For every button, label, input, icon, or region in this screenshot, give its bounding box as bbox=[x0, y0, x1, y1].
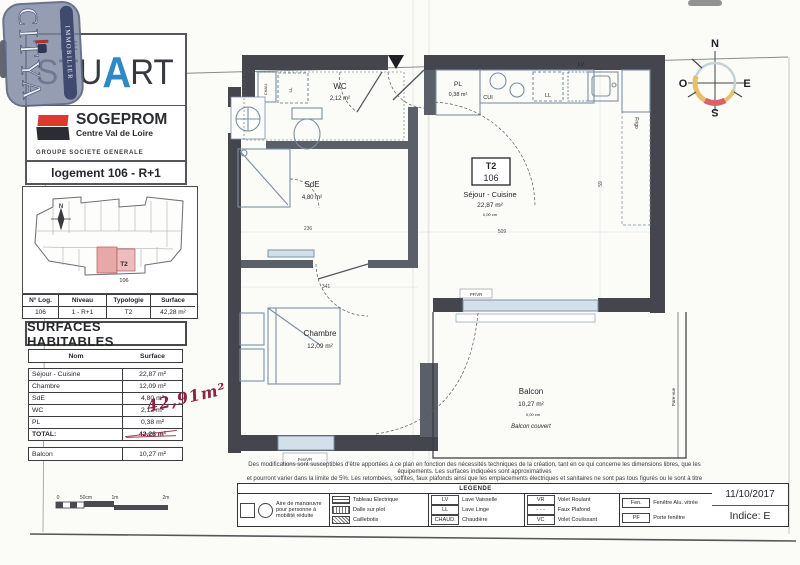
sink-basin bbox=[592, 76, 610, 96]
legend-pmr-column: Aire de manœuvre pour personne à mobilit… bbox=[238, 494, 330, 526]
wc-washer-label: LL bbox=[288, 87, 293, 93]
site-plan-drawing: N T2 106 bbox=[23, 187, 194, 290]
legend-abbr: CHAUD. bbox=[431, 515, 459, 525]
legend-label: Volet Roulant bbox=[558, 497, 591, 503]
unit-type-label: T2 bbox=[486, 161, 497, 171]
balcony-row: Balcon 10,27 m² bbox=[28, 447, 183, 461]
nightstand bbox=[240, 349, 264, 381]
kitchen-counter bbox=[480, 70, 594, 103]
sde-area-label: 4,80 m² bbox=[302, 195, 322, 201]
wc-door-leaf bbox=[357, 72, 382, 112]
dishwasher-box bbox=[568, 72, 594, 101]
compass-east-arc bbox=[725, 90, 734, 101]
bedroom-door-leaf bbox=[318, 264, 368, 279]
legend-label: Porte fenêtre bbox=[653, 515, 685, 521]
sejour-label: Séjour - Cuisine bbox=[463, 190, 516, 199]
pare-vue-label: Pare-vue bbox=[671, 387, 676, 406]
unit-level-cell: 1 - R+1 bbox=[59, 307, 107, 318]
unit-table-header: Typologie bbox=[107, 295, 151, 307]
compass-o: O bbox=[679, 78, 688, 90]
pl-label: PL bbox=[454, 81, 462, 88]
balcon-height-label: 0,00 cm bbox=[526, 412, 541, 417]
balcony-bay-window bbox=[463, 300, 598, 311]
plan-construction-lines bbox=[241, 55, 650, 435]
chambre-area-label: 12,09 m² bbox=[307, 343, 333, 350]
surfaces-header-row: Nom Surface bbox=[28, 349, 183, 363]
legend-label: Chaudière bbox=[462, 517, 487, 523]
nightstand bbox=[240, 313, 264, 345]
scale-bar-labels: 0 50cm 1m 2m bbox=[57, 495, 170, 501]
svg-text:0: 0 bbox=[57, 495, 60, 501]
developer-name: SOGEPROM bbox=[76, 111, 167, 129]
surfaces-header-name: Nom bbox=[29, 350, 123, 362]
legend-abbr: VC bbox=[527, 515, 555, 525]
legend-label: Tableau Electrique bbox=[353, 497, 398, 503]
legend-label: Fenêtre Alu. vitrée bbox=[653, 500, 698, 506]
dimension-label: 236 bbox=[304, 226, 313, 232]
dalle-sur-plot-icon bbox=[332, 506, 350, 514]
wc-washer-box bbox=[278, 73, 308, 103]
scale-bar-segments bbox=[56, 501, 168, 510]
unit-table-header: N° Log. bbox=[23, 295, 59, 307]
legend-symbols-column: Tableau Electrique Dalle sur plot Caille… bbox=[330, 494, 429, 526]
svg-text:1m: 1m bbox=[112, 495, 119, 501]
unit-surface-cell: 42,28 m² bbox=[151, 307, 195, 318]
caillebotis-icon bbox=[332, 516, 350, 524]
room-name: SdE bbox=[29, 393, 123, 405]
entrance-arrow-icon bbox=[388, 55, 404, 69]
balcony-area: 10,27 m² bbox=[123, 448, 182, 460]
fridge-label: Frigo bbox=[633, 117, 639, 129]
legend-appliance-column: LVLave Vaisselle LLLave Linge CHAUD.Chau… bbox=[429, 494, 525, 526]
wc-label: WC bbox=[333, 82, 347, 91]
unit-table-value-row: 106 1 - R+1 T2 42,28 m² bbox=[23, 307, 197, 318]
fridge-closet bbox=[622, 70, 650, 112]
disclaimer-line1: Des modifications sont susceptibles d'êt… bbox=[248, 462, 700, 475]
unit-summary-table: N° Log. Niveau Typologie Surface 106 1 -… bbox=[22, 294, 198, 319]
floor-plan: WC 2,12 m² SdE 4,80 m² PL 0,38 m² T2 106… bbox=[228, 45, 690, 465]
citya-emblem-building-icon bbox=[37, 44, 46, 53]
pl-area-label: 0,38 m² bbox=[449, 92, 468, 98]
plan-labels: WC 2,12 m² SdE 4,80 m² PL 0,38 m² T2 106… bbox=[263, 62, 676, 462]
room-name: Séjour - Cuisine bbox=[29, 369, 123, 381]
total-value: 42,28 m² bbox=[123, 429, 182, 440]
bedroom-window bbox=[278, 436, 334, 450]
legend-title: LEGENDE bbox=[238, 484, 713, 494]
compass-west-arc bbox=[695, 76, 705, 100]
plan-fixtures bbox=[231, 70, 650, 384]
svg-text:2m: 2m bbox=[163, 495, 170, 501]
legend-shutter-column: VRVolet Roulant - - -Faux Plafond VCVole… bbox=[525, 494, 621, 526]
unit-table-header-row: N° Log. Niveau Typologie Surface bbox=[23, 295, 197, 307]
developer-region: Centre Val de Loire bbox=[76, 128, 153, 138]
wc-area-label: 2,12 m² bbox=[330, 96, 350, 102]
balcony-window-tag: PF/VR bbox=[470, 292, 482, 297]
unit-number-label: 106 bbox=[483, 173, 498, 183]
developer-group: GROUPE SOCIETE GENERALE bbox=[36, 150, 143, 156]
balcon-note-label: Balcon couvert bbox=[511, 424, 551, 430]
sogeprom-logo-icon-dark bbox=[36, 127, 69, 140]
unit-table-header: Surface bbox=[151, 295, 195, 307]
pmr-square-icon bbox=[240, 503, 255, 518]
scanned-floor-plan-sheet: CITYA IMMOBILIER LE STUART SOGEPROM Cent… bbox=[0, 0, 800, 565]
room-name: Chambre bbox=[29, 381, 123, 393]
room-name: WC bbox=[29, 405, 123, 417]
balcony-name: Balcon bbox=[29, 448, 123, 460]
scale-bar: 0 50cm 1m 2m bbox=[52, 492, 172, 518]
compass-rose: N E O S bbox=[678, 35, 752, 123]
svg-text:50cm: 50cm bbox=[80, 495, 92, 501]
table-row: PL 0,38 m² bbox=[29, 417, 182, 429]
compass-n: N bbox=[711, 38, 719, 50]
citya-stamp: CITYA IMMOBILIER bbox=[1, 0, 84, 108]
balcony-railing bbox=[433, 312, 686, 458]
room-area: 22,87 m² bbox=[123, 369, 182, 381]
legend-label: Faux Plafond bbox=[558, 507, 590, 513]
unit-number-cell: 106 bbox=[23, 307, 59, 318]
boiler-label: CHAU. bbox=[263, 83, 268, 95]
faucet-icon bbox=[612, 83, 616, 87]
sogeprom-logo-icon bbox=[37, 115, 68, 126]
room-area: 0,38 m² bbox=[123, 417, 182, 429]
legend-body: Aire de manœuvre pour personne à mobilit… bbox=[238, 494, 713, 526]
hob-burner-icon bbox=[510, 83, 524, 97]
project-name-post: RT bbox=[130, 51, 173, 91]
unit-table-header: Niveau bbox=[59, 295, 107, 307]
citya-stamp-brand: CITYA bbox=[12, 7, 48, 102]
toilet-tank bbox=[292, 108, 322, 119]
table-row: Séjour - Cuisine 22,87 m² bbox=[29, 369, 182, 381]
legend-abbr: VR bbox=[527, 495, 555, 505]
dimension-label: 341 bbox=[322, 284, 331, 290]
legend-label: Caillebotis bbox=[353, 517, 378, 523]
dishwasher-label: LV bbox=[578, 62, 585, 68]
surfaces-header-area: Surface bbox=[123, 350, 182, 362]
compass-south-arc bbox=[705, 100, 725, 103]
legend-abbr: PF bbox=[622, 513, 650, 523]
plan-indice: Indice: E bbox=[712, 506, 788, 527]
total-label: TOTAL: bbox=[29, 429, 123, 440]
legend-abbr: LL bbox=[431, 505, 459, 515]
legend-label: Volet Coulissant bbox=[558, 517, 597, 523]
legend-label: Lave Linge bbox=[462, 507, 489, 513]
site-plan-unit-type: T2 bbox=[120, 261, 128, 268]
pmr-circle-icon bbox=[258, 503, 273, 518]
site-plan-box: N T2 106 bbox=[22, 186, 198, 294]
balcon-area-label: 10,27 m² bbox=[518, 401, 544, 408]
faux-plafond-dash-symbol: - - - bbox=[527, 505, 555, 515]
legend-abbr: LV bbox=[431, 495, 459, 505]
dimension-label: 59 bbox=[598, 181, 604, 187]
electrical-panel-icon bbox=[332, 496, 350, 504]
sde-glazing bbox=[268, 250, 314, 257]
hob-label: CUI bbox=[483, 95, 493, 101]
balcon-label: Balcon bbox=[519, 387, 543, 396]
compass-s: S bbox=[711, 106, 718, 118]
legend-label: Lave Vaisselle bbox=[462, 497, 497, 503]
plan-date: 11/10/2017 bbox=[712, 484, 788, 506]
site-plan-north-label: N bbox=[59, 204, 63, 210]
legend-abbr: Fen. bbox=[622, 498, 650, 508]
fridge-zone-dashed bbox=[622, 112, 650, 225]
surfaces-title: SURFACES HABITABLES bbox=[25, 321, 187, 346]
project-name-accent: A bbox=[102, 49, 130, 97]
chambre-label: Chambre bbox=[304, 329, 337, 338]
unit-type-cell: T2 bbox=[107, 307, 151, 318]
pmr-label: Aire de manœuvre pour personne à mobilit… bbox=[276, 501, 327, 520]
legend-table: LEGENDE Aire de manœuvre pour personne à… bbox=[237, 483, 714, 527]
washer-label: LL bbox=[545, 93, 551, 99]
room-name: PL bbox=[29, 417, 123, 429]
hob-burner-icon bbox=[490, 73, 506, 89]
site-plan-highlighted-unit bbox=[97, 247, 135, 273]
site-plan-unit-number: 106 bbox=[119, 278, 128, 284]
sejour-height-label: 0,00 cm bbox=[483, 212, 498, 217]
sejour-area-label: 22,87 m² bbox=[477, 202, 503, 209]
developer-logo-box: SOGEPROM Centre Val de Loire GROUPE SOCI… bbox=[25, 105, 187, 162]
dimension-label: 509 bbox=[498, 229, 507, 235]
revision-box: 11/10/2017 Indice: E bbox=[712, 483, 789, 527]
legend-label: Dalle sur plot bbox=[353, 507, 385, 513]
surfaces-total-row: TOTAL: 42,28 m² bbox=[29, 429, 182, 440]
legend-window-column: Fen.Fenêtre Alu. vitrée PFPorte fenêtre bbox=[620, 494, 713, 526]
citya-stamp-sub: IMMOBILIER bbox=[64, 25, 74, 80]
faux-plafond-zone bbox=[244, 72, 404, 140]
compass-e: E bbox=[743, 78, 750, 90]
sde-label: SdE bbox=[304, 180, 319, 189]
table-row: Chambre 12,09 m² bbox=[29, 381, 182, 393]
page-title: logement 106 - R+1 bbox=[25, 160, 187, 185]
